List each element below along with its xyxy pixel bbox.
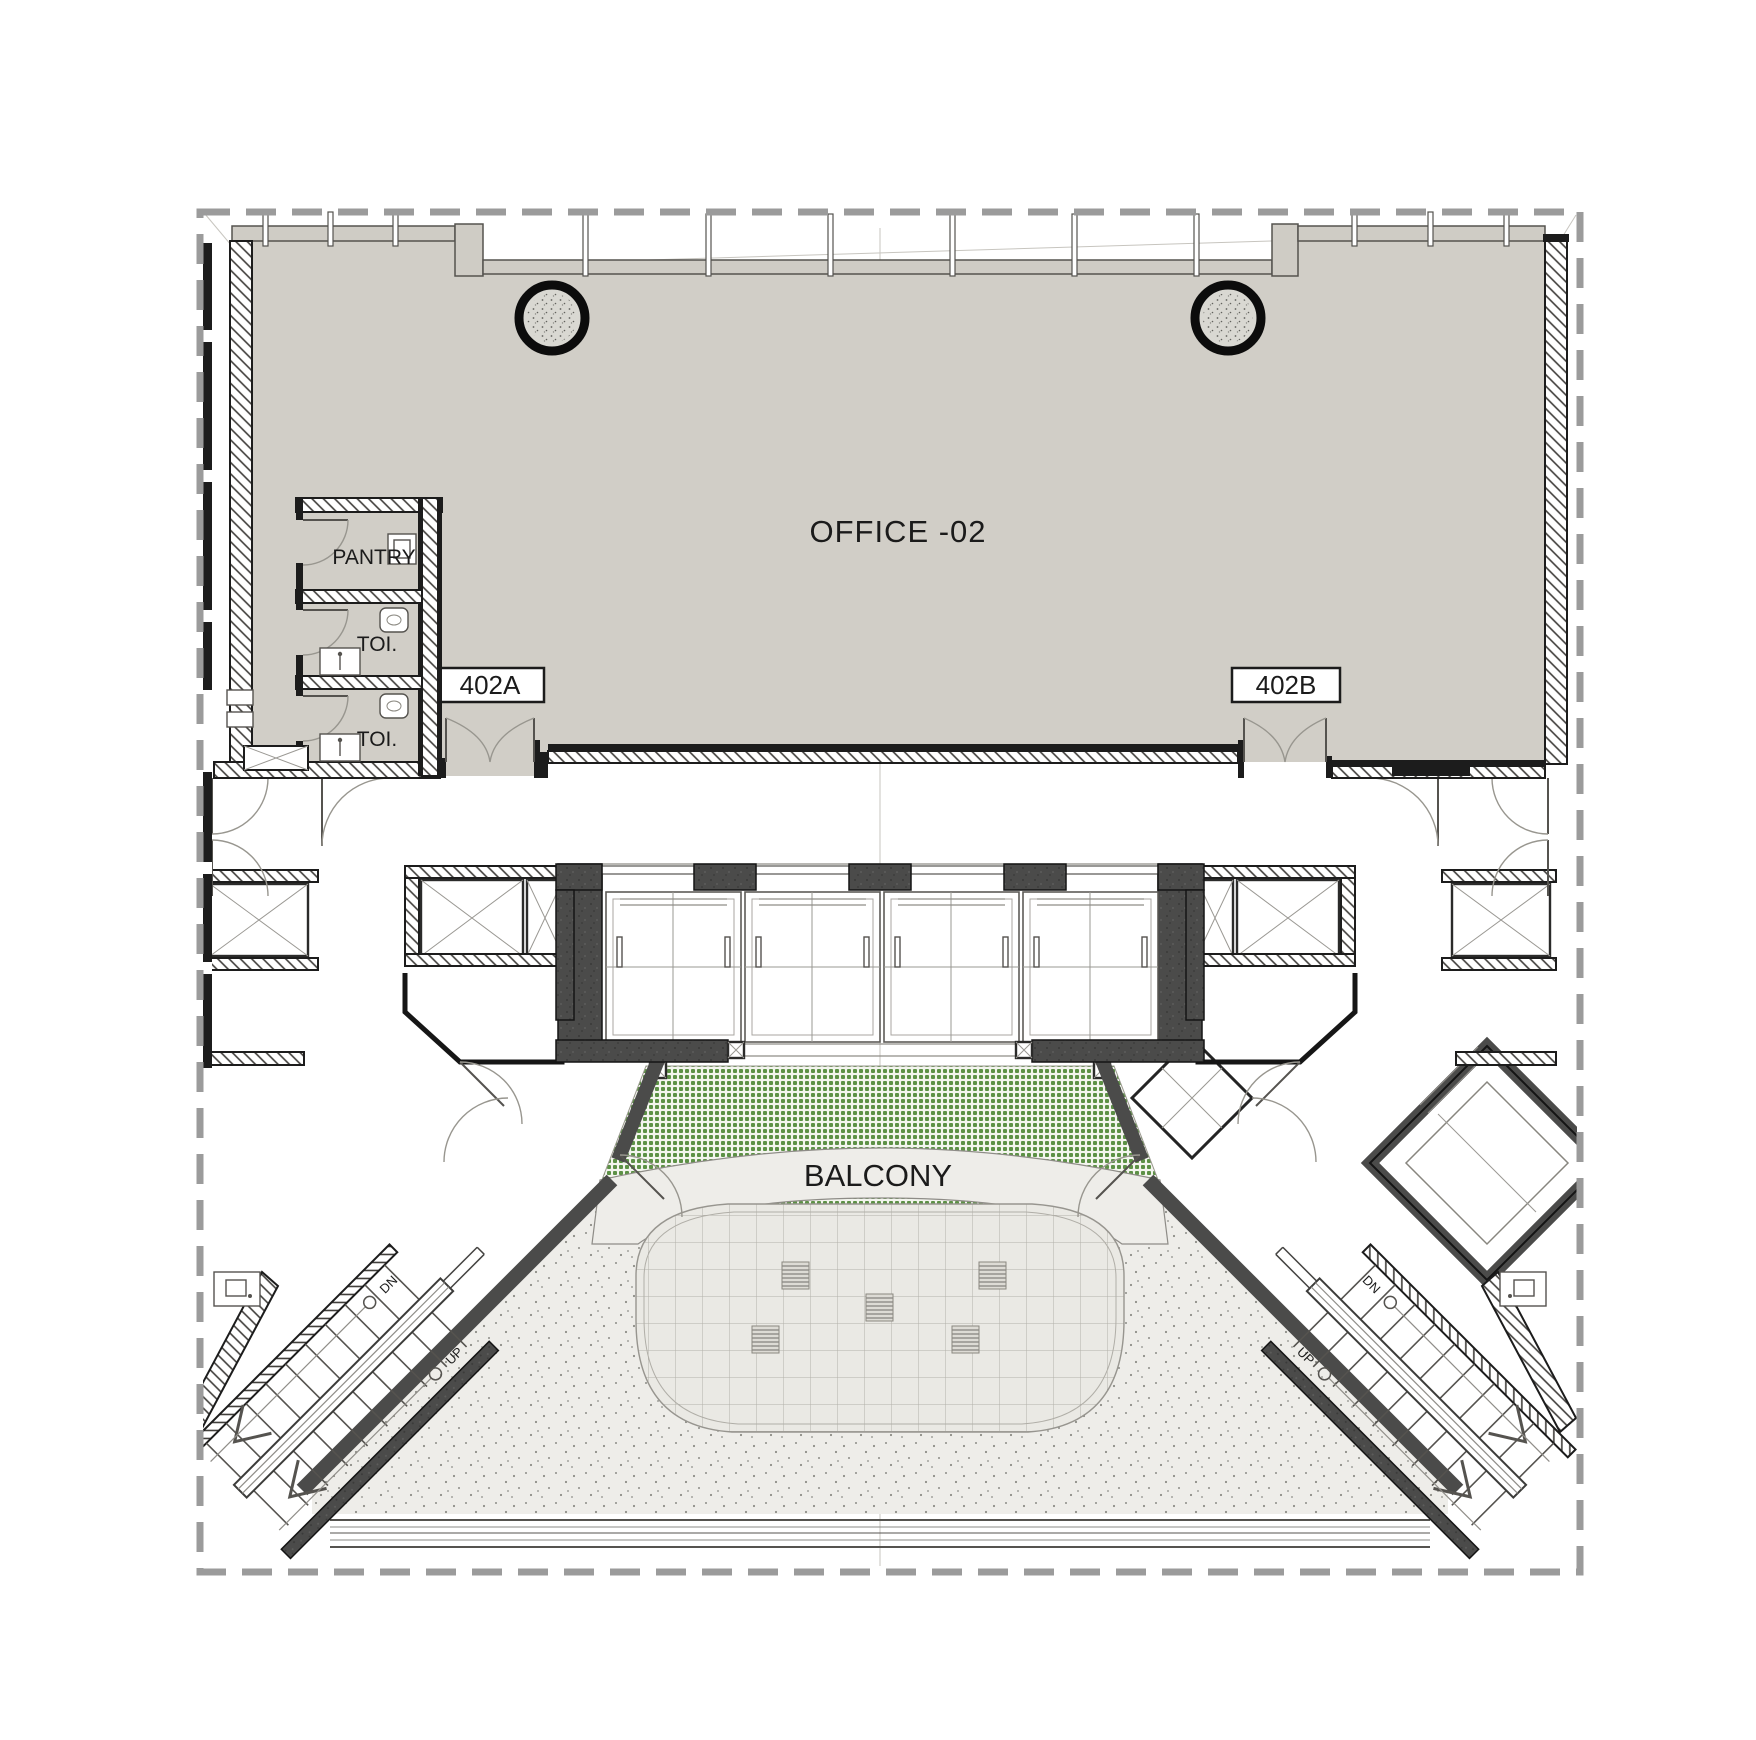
floor-plan-canvas: BALCONY DN UP [0,0,1756,1740]
office-label: OFFICE -02 [809,514,986,549]
basin-west [214,1272,260,1306]
curtain-wall-step2 [1272,224,1298,276]
curtain-wall-mid [483,260,1272,274]
elevator-car-4 [1023,892,1158,1042]
door-tag-402b: 402B [1232,668,1340,702]
basin-east [1500,1272,1546,1306]
toilet-lower-label: TOI. [357,728,397,751]
wc-upper [380,608,408,632]
lift-pier [849,864,911,890]
door-closer-fixture [1392,760,1470,776]
column-east [1195,285,1261,351]
office-wall-south-b [548,751,1238,763]
boundary-wall-west [203,243,212,1068]
balcony-label: BALCONY [804,1158,952,1193]
elevator-car-1 [606,892,741,1042]
elevator-car-3 [884,892,1019,1042]
elevator-car-2 [745,892,880,1042]
toilet-upper-label: TOI. [357,633,397,656]
office-wall-east [1545,238,1567,764]
duct-box [244,746,308,770]
door-tag-402a: 402A [436,668,544,702]
lift-pier [1004,864,1066,890]
column-west [519,285,585,351]
lift-corner-west [556,864,602,890]
floor-plan-drawing: BALCONY DN UP [0,0,1756,1740]
office-wall-west [230,241,252,762]
wc-lower [380,694,408,718]
door-tag-402a-label: 402A [460,670,521,700]
washbasin-lower [320,734,360,761]
elevator-bank [556,864,1204,1062]
curtain-wall-step1 [455,224,483,276]
lift-pier [694,864,756,890]
lift-corner-east [1158,864,1204,890]
washbasin-upper [320,648,360,675]
door-tag-402b-label: 402B [1256,670,1317,700]
pantry-label: PANTRY [332,546,415,569]
